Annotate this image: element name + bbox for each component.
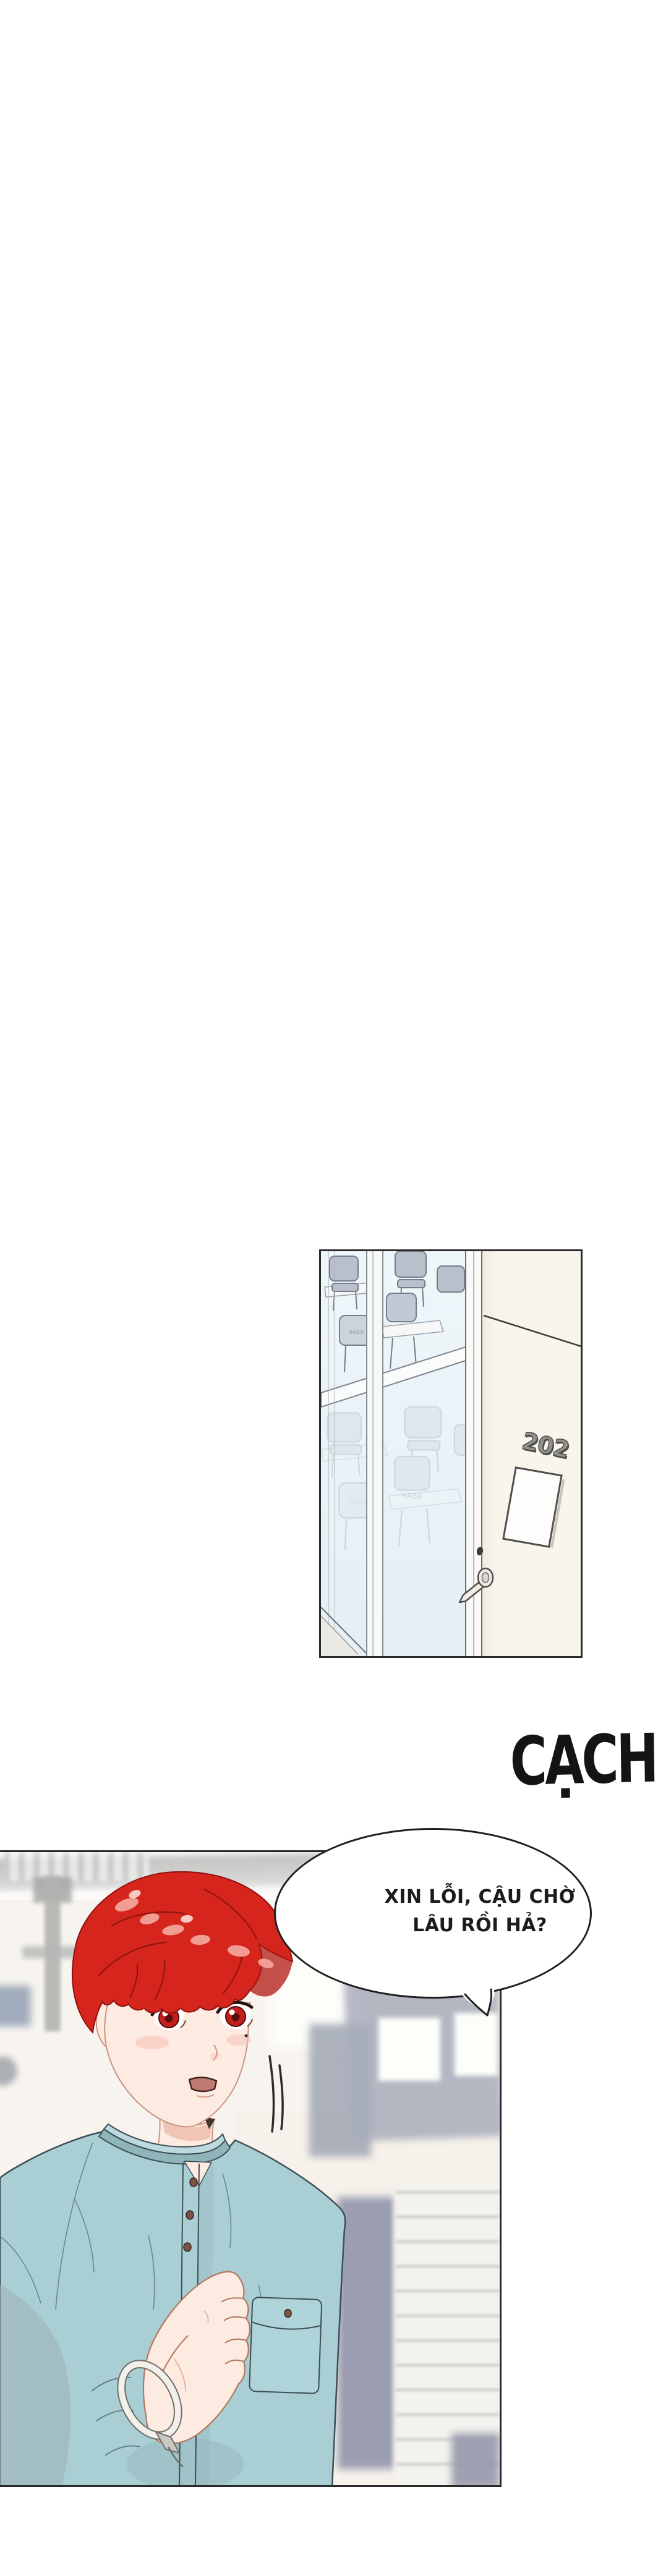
speed-lines <box>270 2056 283 2132</box>
speech-bubble-tail <box>463 1984 497 2020</box>
mole <box>245 2034 248 2038</box>
chair-brand-label: HABA <box>348 1330 364 1336</box>
door-panel: HABA HABA 202 <box>319 1249 583 1658</box>
speech-bubble: XIN LỖI, CẬU CHỜ LÂU RỒI HẢ? <box>274 1828 592 1999</box>
chair-brand-label-reflection: HABA <box>401 1492 422 1500</box>
speech-line-1: XIN LỖI, CẬU CHỜ <box>350 1883 610 1911</box>
floor-corner <box>321 1585 395 1656</box>
sfx-text: CẠCH <box>510 1720 657 1801</box>
door-handle <box>453 1559 503 1609</box>
mouth <box>189 2077 216 2091</box>
speech-bubble-text: XIN LỖI, CẬU CHỜ LÂU RỒI HẢ? <box>350 1883 610 1940</box>
chest-pocket <box>249 2297 322 2394</box>
comic-page: HABA HABA 202 <box>0 0 658 2576</box>
glass-mullion <box>366 1251 383 1656</box>
glass-rail <box>321 1347 466 1407</box>
speech-line-2: LÂU RỒI HẢ? <box>350 1911 610 1940</box>
